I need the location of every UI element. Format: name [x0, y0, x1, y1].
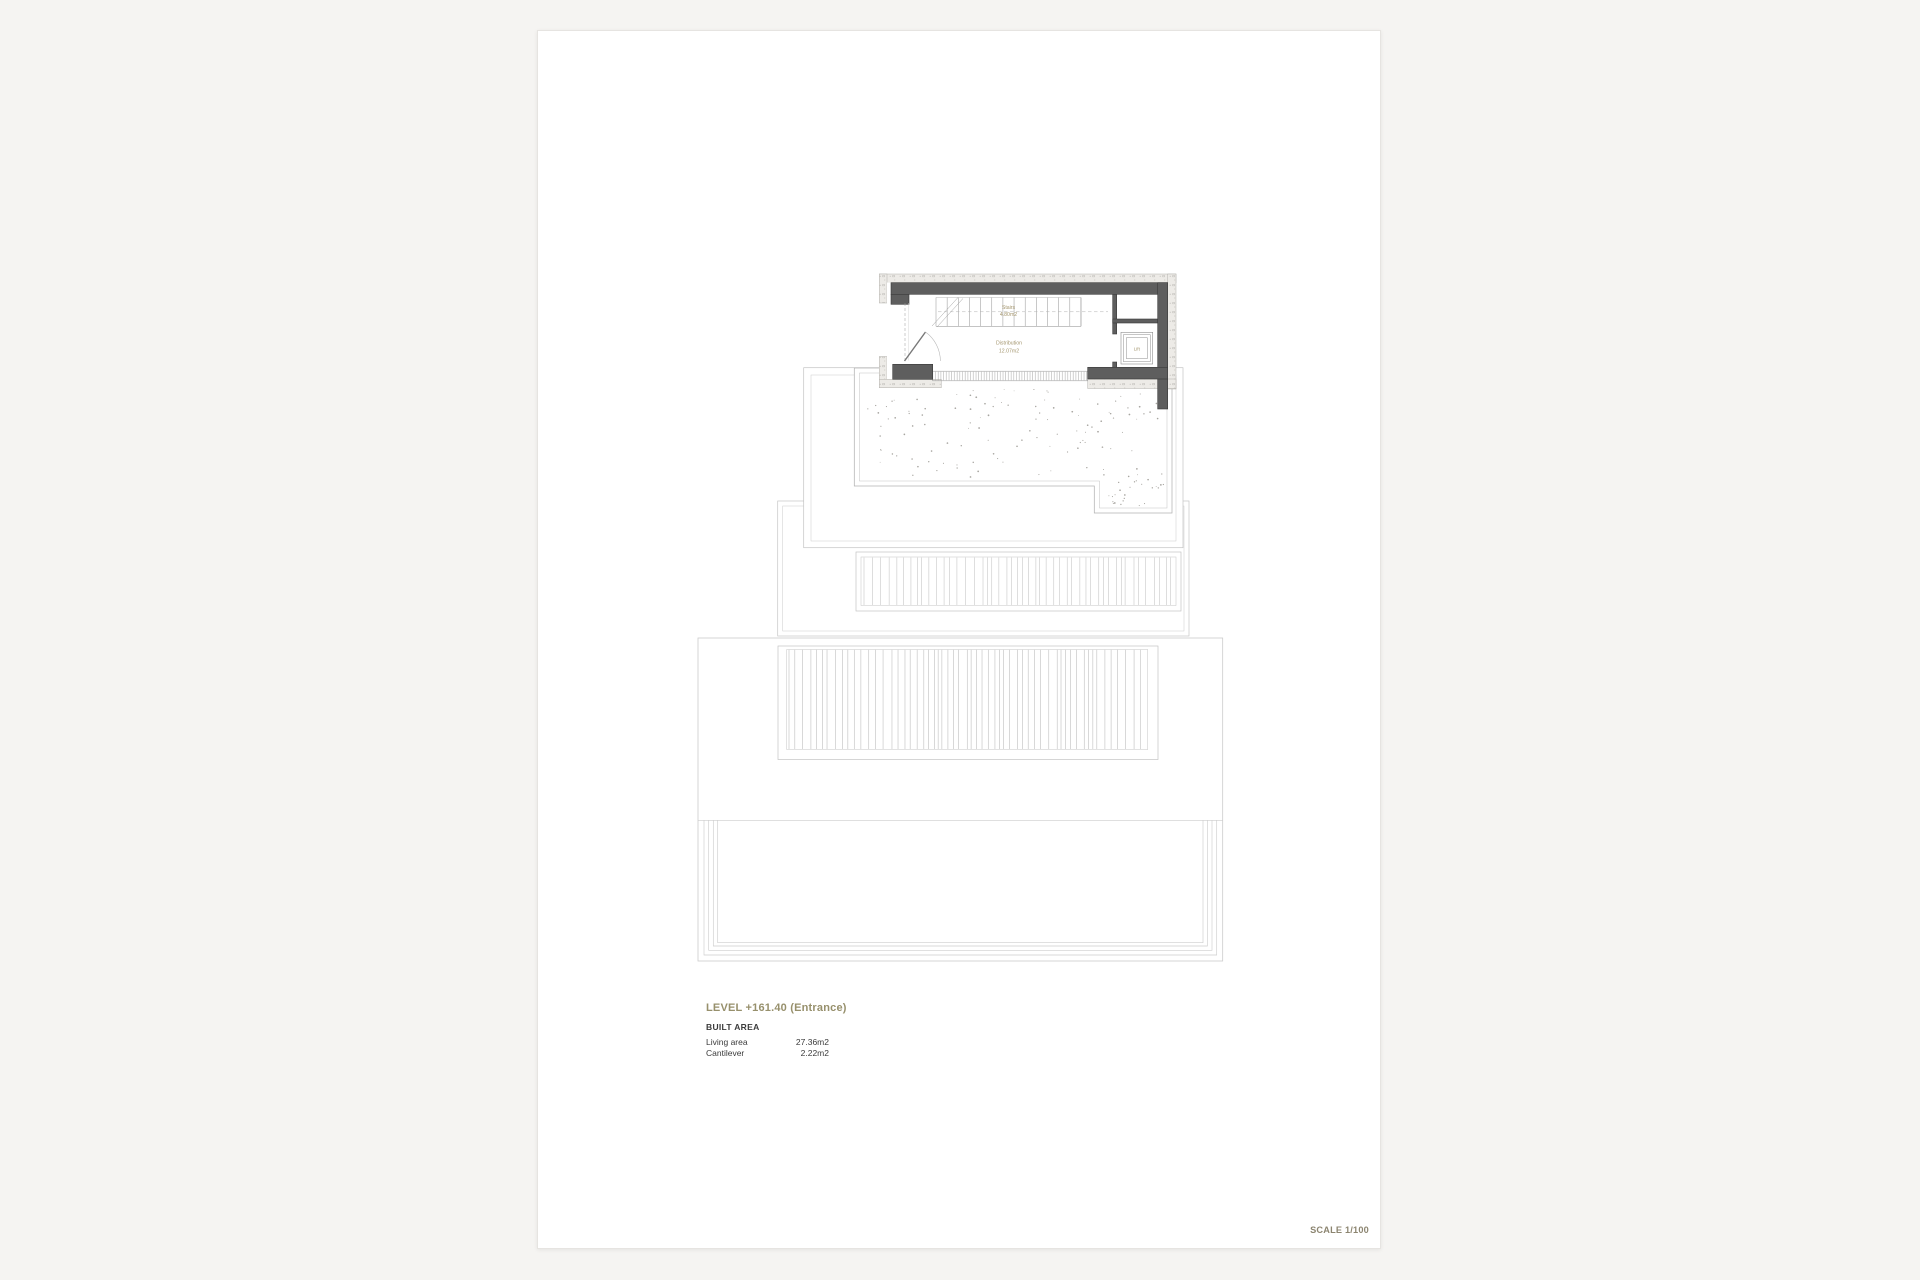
- stairs-area: 4.80m2: [1000, 312, 1017, 318]
- drawing-sheet: Lift Stairs 4.80m2 Distribution 12.07m2 …: [537, 30, 1381, 1249]
- area-row-value: 27.36m2: [796, 1037, 829, 1048]
- area-row-value: 2.22m2: [801, 1048, 829, 1059]
- area-row-cantilever: Cantilever 2.22m2: [706, 1048, 829, 1059]
- louvre-band-upper: [856, 552, 1181, 611]
- wall-right: [1158, 283, 1168, 409]
- floor-plan-drawing: Lift Stairs 4.80m2 Distribution 12.07m2: [538, 31, 1382, 1250]
- page-background: { "plan": { "stairs_label": "Stairs", "s…: [0, 0, 1920, 1280]
- entrance-plan: Lift Stairs 4.80m2 Distribution 12.07m2: [879, 274, 1176, 409]
- louvre-band-lower: [778, 646, 1158, 760]
- distribution-label: Distribution: [996, 341, 1022, 347]
- stairs-label: Stairs: [1002, 305, 1016, 311]
- wall-lift-partition-v: [1113, 294, 1117, 334]
- wall-bottom-right: [1088, 367, 1168, 379]
- wall-top: [891, 283, 1168, 295]
- legend-block: LEVEL +161.40 (Entrance) BUILT AREA Livi…: [706, 1002, 829, 1058]
- wall-bottom-left: [893, 364, 933, 379]
- level-title: LEVEL +161.40 (Entrance): [706, 1002, 829, 1014]
- scale-label: SCALE 1/100: [1310, 1225, 1369, 1235]
- built-area-heading: BUILT AREA: [706, 1022, 829, 1032]
- area-row-label: Cantilever: [706, 1048, 744, 1059]
- area-row-label: Living area: [706, 1037, 748, 1048]
- level-outline-4: [698, 638, 1223, 961]
- lift-label: Lift: [1134, 347, 1141, 352]
- threshold-grille: [933, 371, 1088, 381]
- area-row-living: Living area 27.36m2: [706, 1037, 829, 1048]
- wall-left-stub: [891, 294, 909, 304]
- wall-lift-partition-h: [1113, 319, 1158, 323]
- wall-lift-partition-v2: [1113, 362, 1117, 368]
- distribution-area: 12.07m2: [999, 349, 1019, 355]
- lift-shaft: Lift: [1121, 332, 1153, 364]
